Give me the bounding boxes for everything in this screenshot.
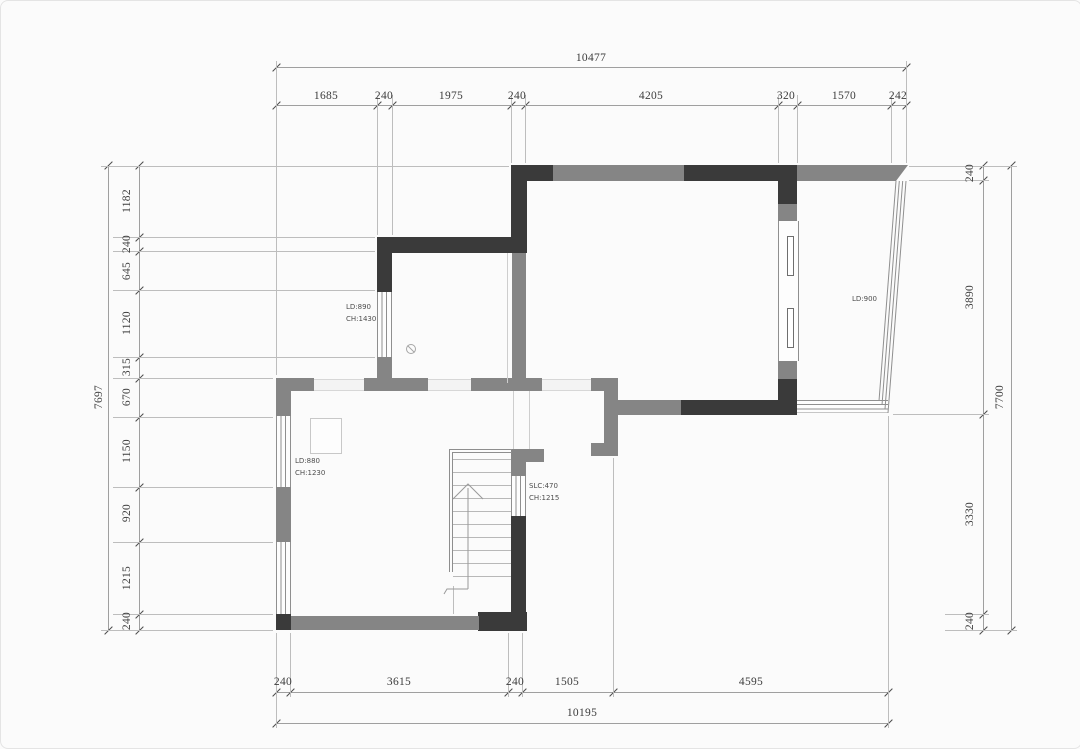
floor-plan-canvas: 10477 1685 240 1975 240 4205 320 1570 24… xyxy=(0,0,1080,749)
stair-direction-arrow xyxy=(444,484,483,594)
balcony-north-band xyxy=(797,165,908,181)
plan-svg-overlay xyxy=(1,1,1080,748)
balcony-east-glazing xyxy=(879,181,906,413)
drain-icon xyxy=(407,345,416,354)
